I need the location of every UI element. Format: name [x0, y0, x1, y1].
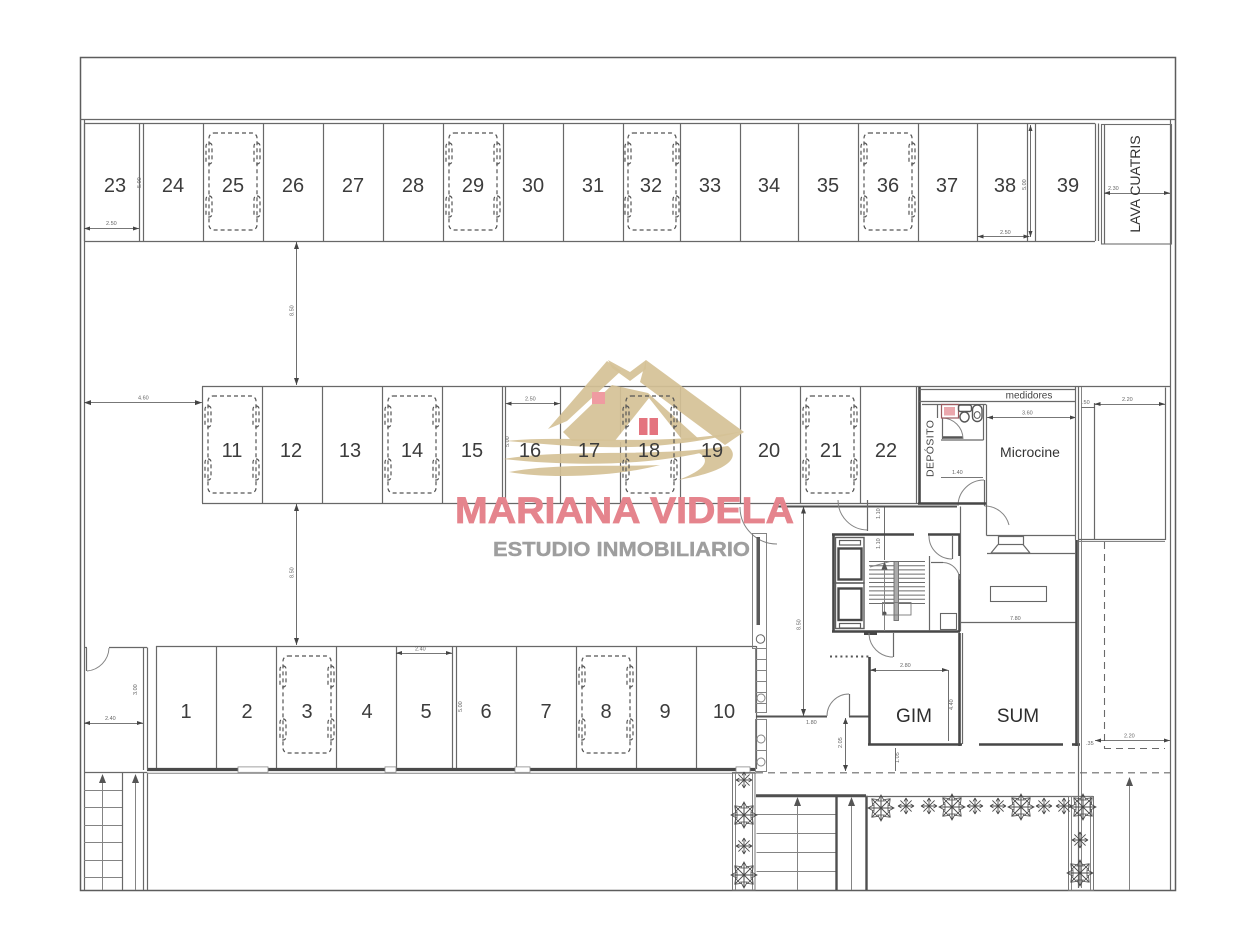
svg-text:10: 10: [713, 701, 735, 723]
svg-text:2.50: 2.50: [1000, 230, 1011, 236]
svg-text:2.05: 2.05: [838, 737, 844, 748]
svg-text:2.20: 2.20: [1124, 734, 1135, 740]
svg-text:.35: .35: [1086, 741, 1094, 747]
svg-text:2.50: 2.50: [106, 221, 117, 227]
svg-text:30: 30: [522, 175, 544, 197]
svg-text:GIM: GIM: [896, 706, 932, 727]
svg-text:14: 14: [401, 440, 423, 462]
svg-text:8: 8: [600, 701, 611, 723]
svg-text:36: 36: [877, 175, 899, 197]
svg-text:2.40: 2.40: [415, 647, 426, 653]
svg-text:4.60: 4.60: [138, 396, 149, 402]
svg-text:5.00: 5.00: [505, 436, 511, 447]
svg-text:9: 9: [659, 701, 670, 723]
svg-text:5.00: 5.00: [458, 701, 464, 712]
svg-text:2.20: 2.20: [1122, 397, 1133, 403]
svg-text:29: 29: [462, 175, 484, 197]
svg-text:35: 35: [817, 175, 839, 197]
svg-text:31: 31: [582, 175, 604, 197]
svg-text:16: 16: [519, 440, 541, 462]
svg-text:8.50: 8.50: [290, 567, 296, 578]
svg-text:23: 23: [104, 175, 126, 197]
svg-text:5.00: 5.00: [137, 177, 143, 188]
svg-text:3: 3: [301, 701, 312, 723]
svg-text:7: 7: [540, 701, 551, 723]
svg-text:32: 32: [640, 175, 662, 197]
svg-text:8.50: 8.50: [797, 619, 803, 630]
svg-text:2: 2: [241, 701, 252, 723]
svg-text:4: 4: [361, 701, 372, 723]
svg-text:34: 34: [758, 175, 780, 197]
svg-text:2.30: 2.30: [1108, 186, 1119, 192]
svg-text:MARIANA VIDELA: MARIANA VIDELA: [455, 490, 794, 531]
svg-text:19: 19: [701, 440, 723, 462]
svg-text:1.05: 1.05: [895, 752, 901, 763]
svg-text:5: 5: [420, 701, 431, 723]
svg-text:ESTUDIO INMOBILIARIO: ESTUDIO INMOBILIARIO: [493, 539, 750, 561]
svg-text:22: 22: [875, 440, 897, 462]
svg-text:25: 25: [222, 175, 244, 197]
svg-text:33: 33: [699, 175, 721, 197]
svg-text:8.50: 8.50: [290, 305, 296, 316]
svg-text:17: 17: [578, 440, 600, 462]
svg-text:39: 39: [1057, 175, 1079, 197]
svg-text:38: 38: [994, 175, 1016, 197]
svg-text:1.80: 1.80: [806, 720, 817, 726]
svg-text:18: 18: [638, 440, 660, 462]
svg-text:1: 1: [180, 701, 191, 723]
svg-text:28: 28: [402, 175, 424, 197]
svg-text:26: 26: [282, 175, 304, 197]
svg-text:2.50: 2.50: [525, 397, 536, 403]
svg-text:37: 37: [936, 175, 958, 197]
svg-text:2.40: 2.40: [105, 716, 116, 722]
svg-text:1.10: 1.10: [876, 508, 882, 519]
svg-text:3.60: 3.60: [1022, 411, 1033, 417]
svg-text:5.00: 5.00: [1022, 179, 1028, 190]
svg-text:1.10: 1.10: [876, 538, 882, 549]
svg-text:1.40: 1.40: [952, 470, 963, 476]
svg-text:21: 21: [820, 440, 842, 462]
svg-text:3.00: 3.00: [133, 684, 139, 695]
svg-text:7.80: 7.80: [1010, 616, 1021, 622]
svg-text:24: 24: [162, 175, 184, 197]
svg-text:medidores: medidores: [1006, 391, 1053, 402]
svg-text:27: 27: [342, 175, 364, 197]
svg-text:15: 15: [461, 440, 483, 462]
svg-text:12: 12: [280, 440, 302, 462]
svg-text:2.80: 2.80: [900, 663, 911, 669]
svg-text:LAVA CUATRIS: LAVA CUATRIS: [1127, 135, 1143, 232]
svg-text:11: 11: [222, 440, 243, 462]
svg-text:Microcine: Microcine: [1000, 444, 1060, 460]
svg-text:13: 13: [339, 440, 361, 462]
svg-text:.50: .50: [1082, 400, 1090, 406]
svg-text:DEPÓSITO: DEPÓSITO: [924, 420, 937, 477]
svg-text:20: 20: [758, 440, 780, 462]
svg-text:6: 6: [480, 701, 491, 723]
svg-text:4.40: 4.40: [949, 699, 955, 710]
svg-text:SUM: SUM: [997, 706, 1039, 727]
